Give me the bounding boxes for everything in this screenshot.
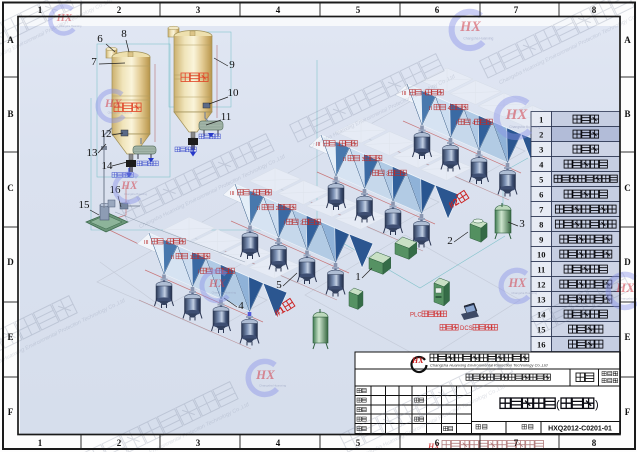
svg-text:D: D <box>7 257 14 267</box>
svg-text:II: II <box>257 206 261 212</box>
svg-text:3: 3 <box>519 218 525 230</box>
svg-text:16: 16 <box>537 340 546 350</box>
svg-text:3: 3 <box>539 145 543 155</box>
svg-text:PLC: PLC <box>410 313 422 319</box>
svg-text:HX: HX <box>120 180 138 192</box>
svg-text:1: 1 <box>355 271 361 283</box>
svg-text:HX: HX <box>104 97 123 110</box>
svg-text:7: 7 <box>514 438 519 448</box>
svg-text:): ) <box>595 399 599 411</box>
svg-text:HX: HX <box>56 13 73 24</box>
svg-text:C: C <box>624 183 631 193</box>
svg-text:HX: HX <box>411 356 424 365</box>
svg-text:F: F <box>8 407 14 417</box>
svg-text:10: 10 <box>228 87 240 99</box>
svg-text:2: 2 <box>539 130 543 140</box>
svg-text:5: 5 <box>276 279 282 291</box>
svg-text:3: 3 <box>196 5 201 15</box>
svg-text:HX: HX <box>615 280 635 295</box>
svg-text:5: 5 <box>356 438 361 448</box>
svg-text:III: III <box>230 191 235 197</box>
svg-text:(: ( <box>556 399 560 411</box>
svg-text:III: III <box>144 240 149 246</box>
svg-text:2: 2 <box>447 235 453 247</box>
svg-text:1: 1 <box>38 438 43 448</box>
svg-text:HXQ2012-C0201-01: HXQ2012-C0201-01 <box>548 426 612 433</box>
svg-text:5: 5 <box>356 5 361 15</box>
svg-text:Changsha Huanxing: Changsha Huanxing <box>124 192 148 196</box>
svg-text:II: II <box>171 255 175 261</box>
svg-text:4: 4 <box>238 300 244 312</box>
svg-text:14: 14 <box>102 160 114 172</box>
svg-text:6: 6 <box>97 33 103 45</box>
svg-text:9: 9 <box>539 235 543 245</box>
svg-text:7: 7 <box>91 56 97 68</box>
svg-text:E: E <box>624 332 630 342</box>
svg-text:8: 8 <box>121 28 127 40</box>
svg-text:HX: HX <box>208 277 227 290</box>
svg-text:9: 9 <box>229 59 235 71</box>
svg-text:Changsha Huanxing: Changsha Huanxing <box>463 36 493 40</box>
svg-text:4: 4 <box>276 5 281 15</box>
svg-text:Changsha Huanxing: Changsha Huanxing <box>259 384 287 388</box>
svg-text:10: 10 <box>537 250 546 260</box>
svg-text:Changsha Huanxing: Changsha Huanxing <box>59 25 82 28</box>
svg-text:4: 4 <box>276 438 281 448</box>
svg-text:II: II <box>343 157 347 163</box>
svg-text:6: 6 <box>435 438 440 448</box>
svg-text:8: 8 <box>592 5 597 15</box>
svg-text:13: 13 <box>87 147 99 159</box>
svg-text:Changsha Huanxing: Changsha Huanxing <box>108 111 133 115</box>
svg-text:2: 2 <box>117 5 122 15</box>
svg-text:1: 1 <box>539 115 543 125</box>
svg-text:B: B <box>7 109 13 119</box>
svg-text:7: 7 <box>514 5 519 15</box>
svg-text:D: D <box>624 257 631 267</box>
svg-text:6: 6 <box>539 190 543 200</box>
svg-text:12: 12 <box>537 280 546 290</box>
svg-text:B: B <box>624 109 630 119</box>
svg-text:Changsha Huanxing: Changsha Huanxing <box>212 291 237 295</box>
svg-text:6: 6 <box>435 5 440 15</box>
svg-text:1: 1 <box>38 5 43 15</box>
svg-text:Changsha Huanxing: Changsha Huanxing <box>509 125 540 129</box>
svg-text:C: C <box>7 183 14 193</box>
svg-text:11: 11 <box>221 111 232 123</box>
svg-text:15: 15 <box>79 199 91 211</box>
svg-text:12: 12 <box>101 128 112 140</box>
svg-text:13: 13 <box>537 295 546 305</box>
svg-text:5: 5 <box>539 175 543 185</box>
svg-text:HX: HX <box>459 19 481 35</box>
svg-text:HX: HX <box>507 276 527 290</box>
svg-text:8: 8 <box>592 438 597 448</box>
svg-text:Changsha Huanxing: Changsha Huanxing <box>511 291 537 295</box>
svg-text:II: II <box>429 106 433 112</box>
svg-text:A: A <box>624 35 631 45</box>
svg-text:DCS: DCS <box>460 326 473 332</box>
svg-text:HX: HX <box>255 367 275 382</box>
svg-text:3: 3 <box>196 438 201 448</box>
svg-text:8: 8 <box>539 220 543 230</box>
svg-text:HX: HX <box>505 107 529 123</box>
svg-text:A: A <box>7 35 14 45</box>
svg-text:E: E <box>7 332 13 342</box>
svg-text:F: F <box>625 407 631 417</box>
svg-text:2: 2 <box>117 438 122 448</box>
svg-text:11: 11 <box>537 265 545 275</box>
